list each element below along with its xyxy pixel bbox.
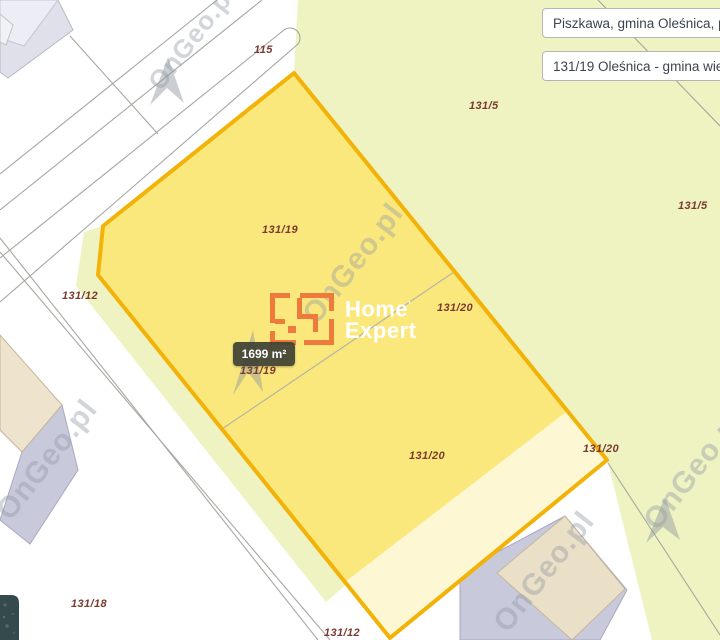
- building-top-left: [0, 0, 73, 78]
- road-number-label: 115: [254, 44, 273, 56]
- homeexpert-logo: Home’ Expert: [270, 293, 416, 345]
- parcel-label: 131/20: [583, 443, 619, 455]
- parcel-label: 131/12: [62, 290, 98, 302]
- parcel-label: 131/19: [240, 365, 276, 377]
- parcel-label: 131/20: [437, 302, 473, 314]
- area-badge: 1699 m²: [233, 342, 295, 366]
- parcel-label: 131/5: [469, 100, 499, 112]
- parcel-label: 131/12: [324, 627, 360, 639]
- parcel-label: 131/5: [678, 200, 708, 212]
- parcel-label: 131/20: [409, 450, 445, 462]
- logo-text: Home’ Expert: [345, 295, 416, 342]
- info-box-location: Piszkawa, gmina Oleśnica, p: [542, 8, 720, 38]
- info-box-parcel: 131/19 Oleśnica - gmina wiej: [542, 51, 720, 81]
- parcel-label: 131/19: [262, 224, 298, 236]
- forest-patch: [0, 595, 19, 640]
- parcel-label: 131/18: [71, 598, 107, 610]
- map-canvas[interactable]: OnGeo.pl OnGeo.pl OnGeo.pl OnGeo.pl OnGe…: [0, 0, 720, 640]
- house-plan-icon: [270, 293, 334, 345]
